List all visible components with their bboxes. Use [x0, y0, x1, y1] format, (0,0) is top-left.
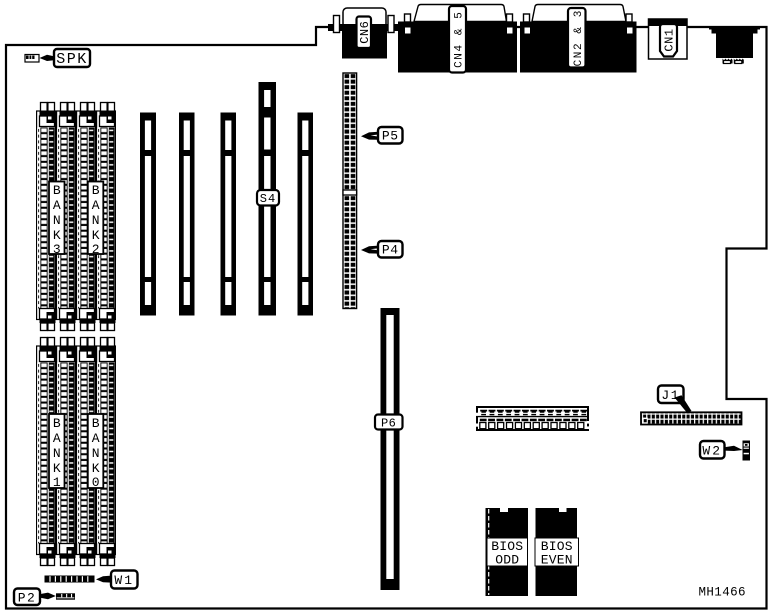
svg-text:N: N — [53, 446, 61, 461]
svg-text:K: K — [53, 228, 61, 243]
svg-text:3: 3 — [53, 242, 61, 257]
svg-text:CN6: CN6 — [358, 21, 372, 44]
svg-text:SPK: SPK — [56, 51, 88, 68]
svg-text:K: K — [53, 461, 61, 476]
svg-text:ODD: ODD — [495, 553, 519, 568]
svg-text:1: 1 — [53, 475, 61, 490]
svg-text:CN2 & 3: CN2 & 3 — [573, 9, 585, 66]
svg-text:A: A — [92, 431, 100, 446]
svg-text:MH1466: MH1466 — [699, 586, 746, 600]
svg-text:B: B — [53, 416, 61, 431]
svg-text:0: 0 — [92, 475, 100, 490]
svg-text:K: K — [92, 228, 100, 243]
svg-text:B: B — [92, 183, 100, 198]
svg-text:P6: P6 — [381, 416, 396, 430]
svg-text:P5: P5 — [382, 129, 399, 144]
svg-text:P2: P2 — [18, 590, 37, 605]
svg-text:N: N — [92, 213, 100, 228]
svg-text:N: N — [53, 213, 61, 228]
svg-text:EVEN: EVEN — [541, 553, 573, 568]
svg-text:A: A — [53, 198, 61, 213]
svg-text:S4: S4 — [260, 192, 276, 206]
svg-text:N: N — [92, 446, 100, 461]
svg-text:A: A — [92, 198, 100, 213]
svg-text:W1: W1 — [114, 573, 134, 588]
svg-text:CN4 & 5: CN4 & 5 — [454, 10, 466, 67]
svg-text:B: B — [92, 416, 100, 431]
svg-text:2: 2 — [92, 242, 100, 257]
svg-text:W2: W2 — [702, 443, 722, 458]
svg-text:B: B — [53, 183, 61, 198]
svg-text:P4: P4 — [382, 243, 399, 258]
svg-text:CN1: CN1 — [663, 28, 677, 51]
svg-text:A: A — [53, 431, 61, 446]
svg-text:K: K — [92, 461, 100, 476]
